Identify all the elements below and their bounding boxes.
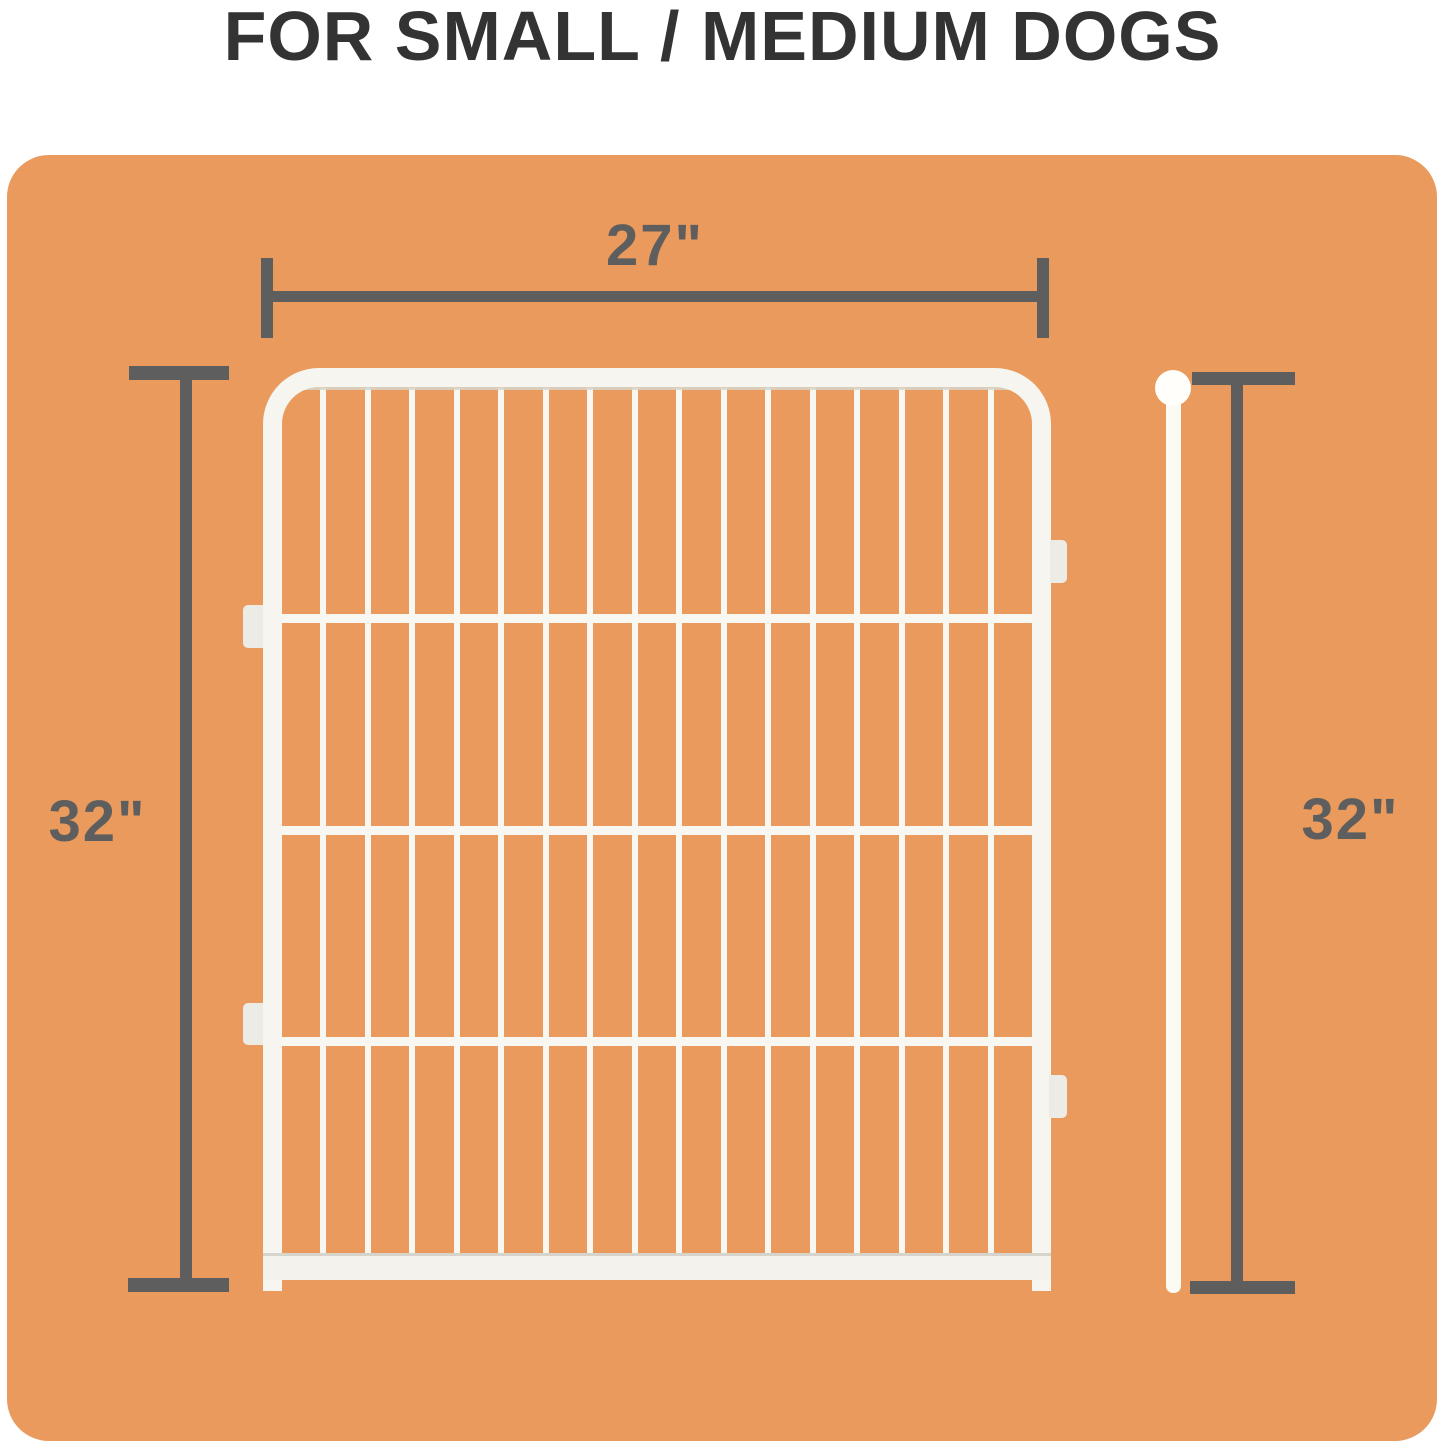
pen-frame bbox=[263, 368, 1051, 1291]
pen-bottom-bar bbox=[263, 1253, 1051, 1280]
width-dimension-line bbox=[267, 291, 1043, 302]
connector-tab-left-top bbox=[243, 605, 263, 648]
vertical-pole bbox=[1166, 392, 1181, 1293]
page-title: FOR SMALL / MEDIUM DOGS bbox=[0, 0, 1445, 72]
width-dimension-label: 27" bbox=[261, 212, 1049, 279]
pole-ball-top-icon bbox=[1155, 370, 1191, 406]
right-dimension-top-cap bbox=[1192, 372, 1295, 385]
left-dimension-line bbox=[180, 374, 192, 1285]
left-dimension-top-cap bbox=[129, 366, 229, 380]
left-dimension-bottom-cap bbox=[128, 1278, 229, 1292]
pen-panel-illustration bbox=[263, 368, 1051, 1291]
connector-tab-left-bottom bbox=[243, 1003, 263, 1045]
right-dimension-label: 32" bbox=[1283, 786, 1418, 853]
infographic-canvas: FOR SMALL / MEDIUM DOGS 27" 32" 32" bbox=[0, 0, 1445, 1452]
left-dimension-label: 32" bbox=[20, 788, 175, 855]
connector-tab-right-top bbox=[1050, 540, 1067, 583]
right-dimension-line bbox=[1231, 379, 1243, 1288]
right-dimension-bottom-cap bbox=[1190, 1281, 1295, 1294]
connector-tab-right-bottom bbox=[1049, 1075, 1067, 1118]
